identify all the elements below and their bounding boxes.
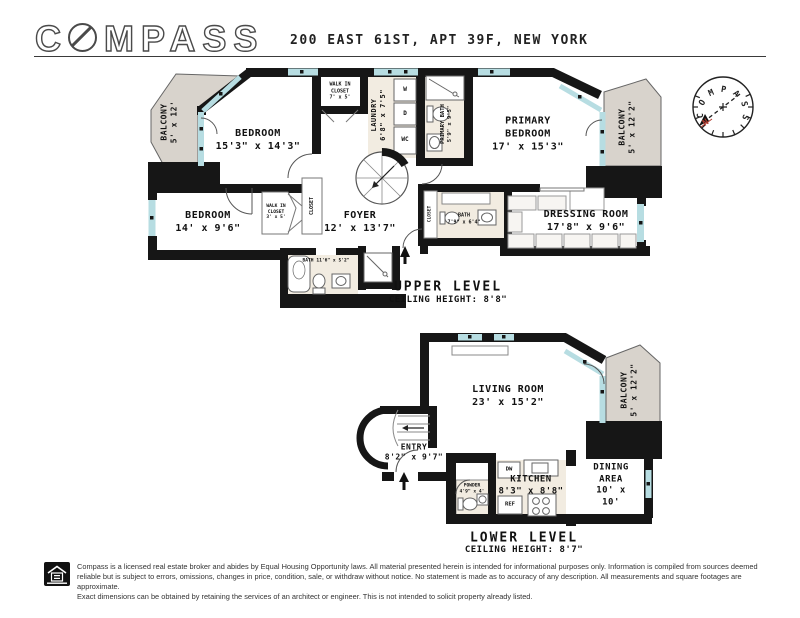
room-name: BALCONY	[160, 103, 169, 140]
wc-label: WC	[401, 136, 408, 144]
disclaimer-line-1: Compass is a licensed real estate broker…	[77, 562, 767, 572]
room-dims: 5' x 12'2"	[628, 100, 637, 153]
room-name: BALCONY	[620, 371, 629, 408]
washer-label: W	[403, 86, 407, 94]
room-name: LAUNDRY	[370, 98, 378, 131]
walk-in-closet-1-label: WALK IN CLOSET7' x 5'	[323, 81, 357, 101]
legal-disclaimer: Compass is a licensed real estate broker…	[77, 562, 767, 602]
kitchen-label: KITCHEN8'3" x 8'8"	[498, 474, 563, 497]
upper-right-balcony-label: BALCONY5' x 12'2"	[618, 100, 639, 153]
upper-left-balcony-label: BALCONY5' x 12'	[160, 101, 181, 144]
room-name: DRESSING ROOM	[544, 209, 629, 220]
upper-entry-arrow-icon	[400, 246, 410, 264]
room-name: BALCONY	[618, 108, 627, 145]
room-name: KITCHEN	[510, 474, 551, 484]
bath2-closet-label: CLOSET	[427, 206, 433, 223]
room-name: BEDROOM	[185, 210, 231, 221]
room-dims: 7'9" x 6'4"	[447, 219, 480, 225]
room-name: WALK IN CLOSET	[266, 204, 285, 215]
dining-area-label: DINING AREA10' x 10'	[585, 463, 637, 510]
powder-room-label: POWDER4'9" x 4'	[460, 484, 485, 495]
room-name: PRIMARY BATH	[440, 104, 446, 144]
room-dims: 17' x 15'3"	[492, 142, 564, 153]
room-dims: 11'6" x 5'2"	[316, 258, 349, 263]
room-name: BATH	[458, 213, 470, 219]
lower-ceiling-height: CEILING HEIGHT: 8'7"	[465, 545, 583, 557]
spiral-staircase	[356, 152, 408, 204]
room-dims: 12' x 13'7"	[324, 223, 396, 234]
room-name: LIVING ROOM	[472, 384, 544, 395]
upper-ceiling-height: CEILING HEIGHT: 8'8"	[389, 295, 507, 307]
room-dims: 6'8" x 7'5"	[379, 89, 387, 141]
walk-in-closet-2-label: WALK IN CLOSET3' x 5'	[262, 204, 290, 221]
room-dims: 4'9" x 4'	[460, 489, 485, 494]
dryer-label: D	[403, 110, 407, 118]
room-name: ENTRY	[401, 443, 428, 452]
room-dims: 10' x 10'	[596, 486, 626, 508]
closet-label: CLOSET	[309, 197, 316, 215]
room-dims: 3' x 5'	[266, 215, 285, 220]
room-name: DINING AREA	[593, 463, 629, 485]
lower-staircase	[393, 410, 430, 446]
console-table	[452, 346, 508, 355]
room-dims: 14' x 9'6"	[175, 223, 240, 234]
room-dims: 8'2" x 9'7"	[385, 453, 443, 462]
disclaimer-line-3: Exact dimensions can be obtained by reta…	[77, 592, 767, 602]
floor-plan-graphics: COMPASS N	[0, 0, 800, 618]
room-dims: 5' x 12'	[170, 101, 179, 144]
compass-rose: COMPASS N	[693, 77, 753, 137]
dressing-room-label: DRESSING ROOM17'8" x 9'6"	[544, 208, 629, 234]
equal-housing-logo	[44, 562, 70, 586]
lower-entry-arrow-icon	[399, 472, 409, 490]
bedroom2-label: BEDROOM14' x 9'6"	[175, 209, 240, 235]
room-name: BEDROOM	[235, 128, 281, 139]
upper-level-title: UPPER LEVEL	[394, 280, 502, 297]
dishwasher-label: DW	[506, 466, 513, 473]
room-name: BATH	[302, 258, 313, 263]
bedroom1-label: BEDROOM15'3" x 14'3"	[216, 127, 301, 153]
room-name: WALK IN CLOSET	[329, 81, 350, 94]
room-dims: 8'3" x 8'8"	[498, 486, 563, 496]
room-dims: 17'8" x 9'6"	[547, 222, 625, 233]
disclaimer-line-2: reliable but is subject to errors, omiss…	[77, 572, 767, 592]
room-dims: 5'9" x 9'5"	[447, 106, 453, 142]
room-dims: 7' x 5'	[329, 94, 350, 100]
entry-label: ENTRY8'2" x 9'7"	[385, 443, 443, 464]
floor-plan-page: CMPASS 200 EAST 61ST, APT 39F, NEW YORK	[0, 0, 800, 618]
foyer-label: FOYER12' x 13'7"	[324, 209, 396, 235]
room-dims: 23' x 15'2"	[472, 397, 544, 408]
room-name: POWDER	[464, 484, 481, 489]
bath2-label: BATH7'9" x 6'4"	[447, 213, 480, 226]
room-name: PRIMARY BEDROOM	[505, 116, 551, 140]
room-name: FOYER	[344, 210, 377, 221]
living-room-label: LIVING ROOM23' x 15'2"	[472, 383, 544, 409]
laundry-label: LAUNDRY6'8" x 7'5"	[370, 89, 388, 141]
primary-bath-label: PRIMARY BATH5'9" x 9'5"	[440, 104, 454, 144]
refrigerator-label: REF	[505, 501, 515, 508]
room-dims: 5' x 12'2"	[630, 363, 639, 416]
room-dims: 15'3" x 14'3"	[216, 141, 301, 152]
hall-bath-label: BATH 11'6" x 5'2"	[302, 258, 349, 264]
upper-level-plan	[148, 68, 662, 308]
lower-balcony-label: BALCONY5' x 12'2"	[620, 363, 641, 416]
primary-bedroom-label: PRIMARY BEDROOM17' x 15'3"	[487, 115, 569, 154]
